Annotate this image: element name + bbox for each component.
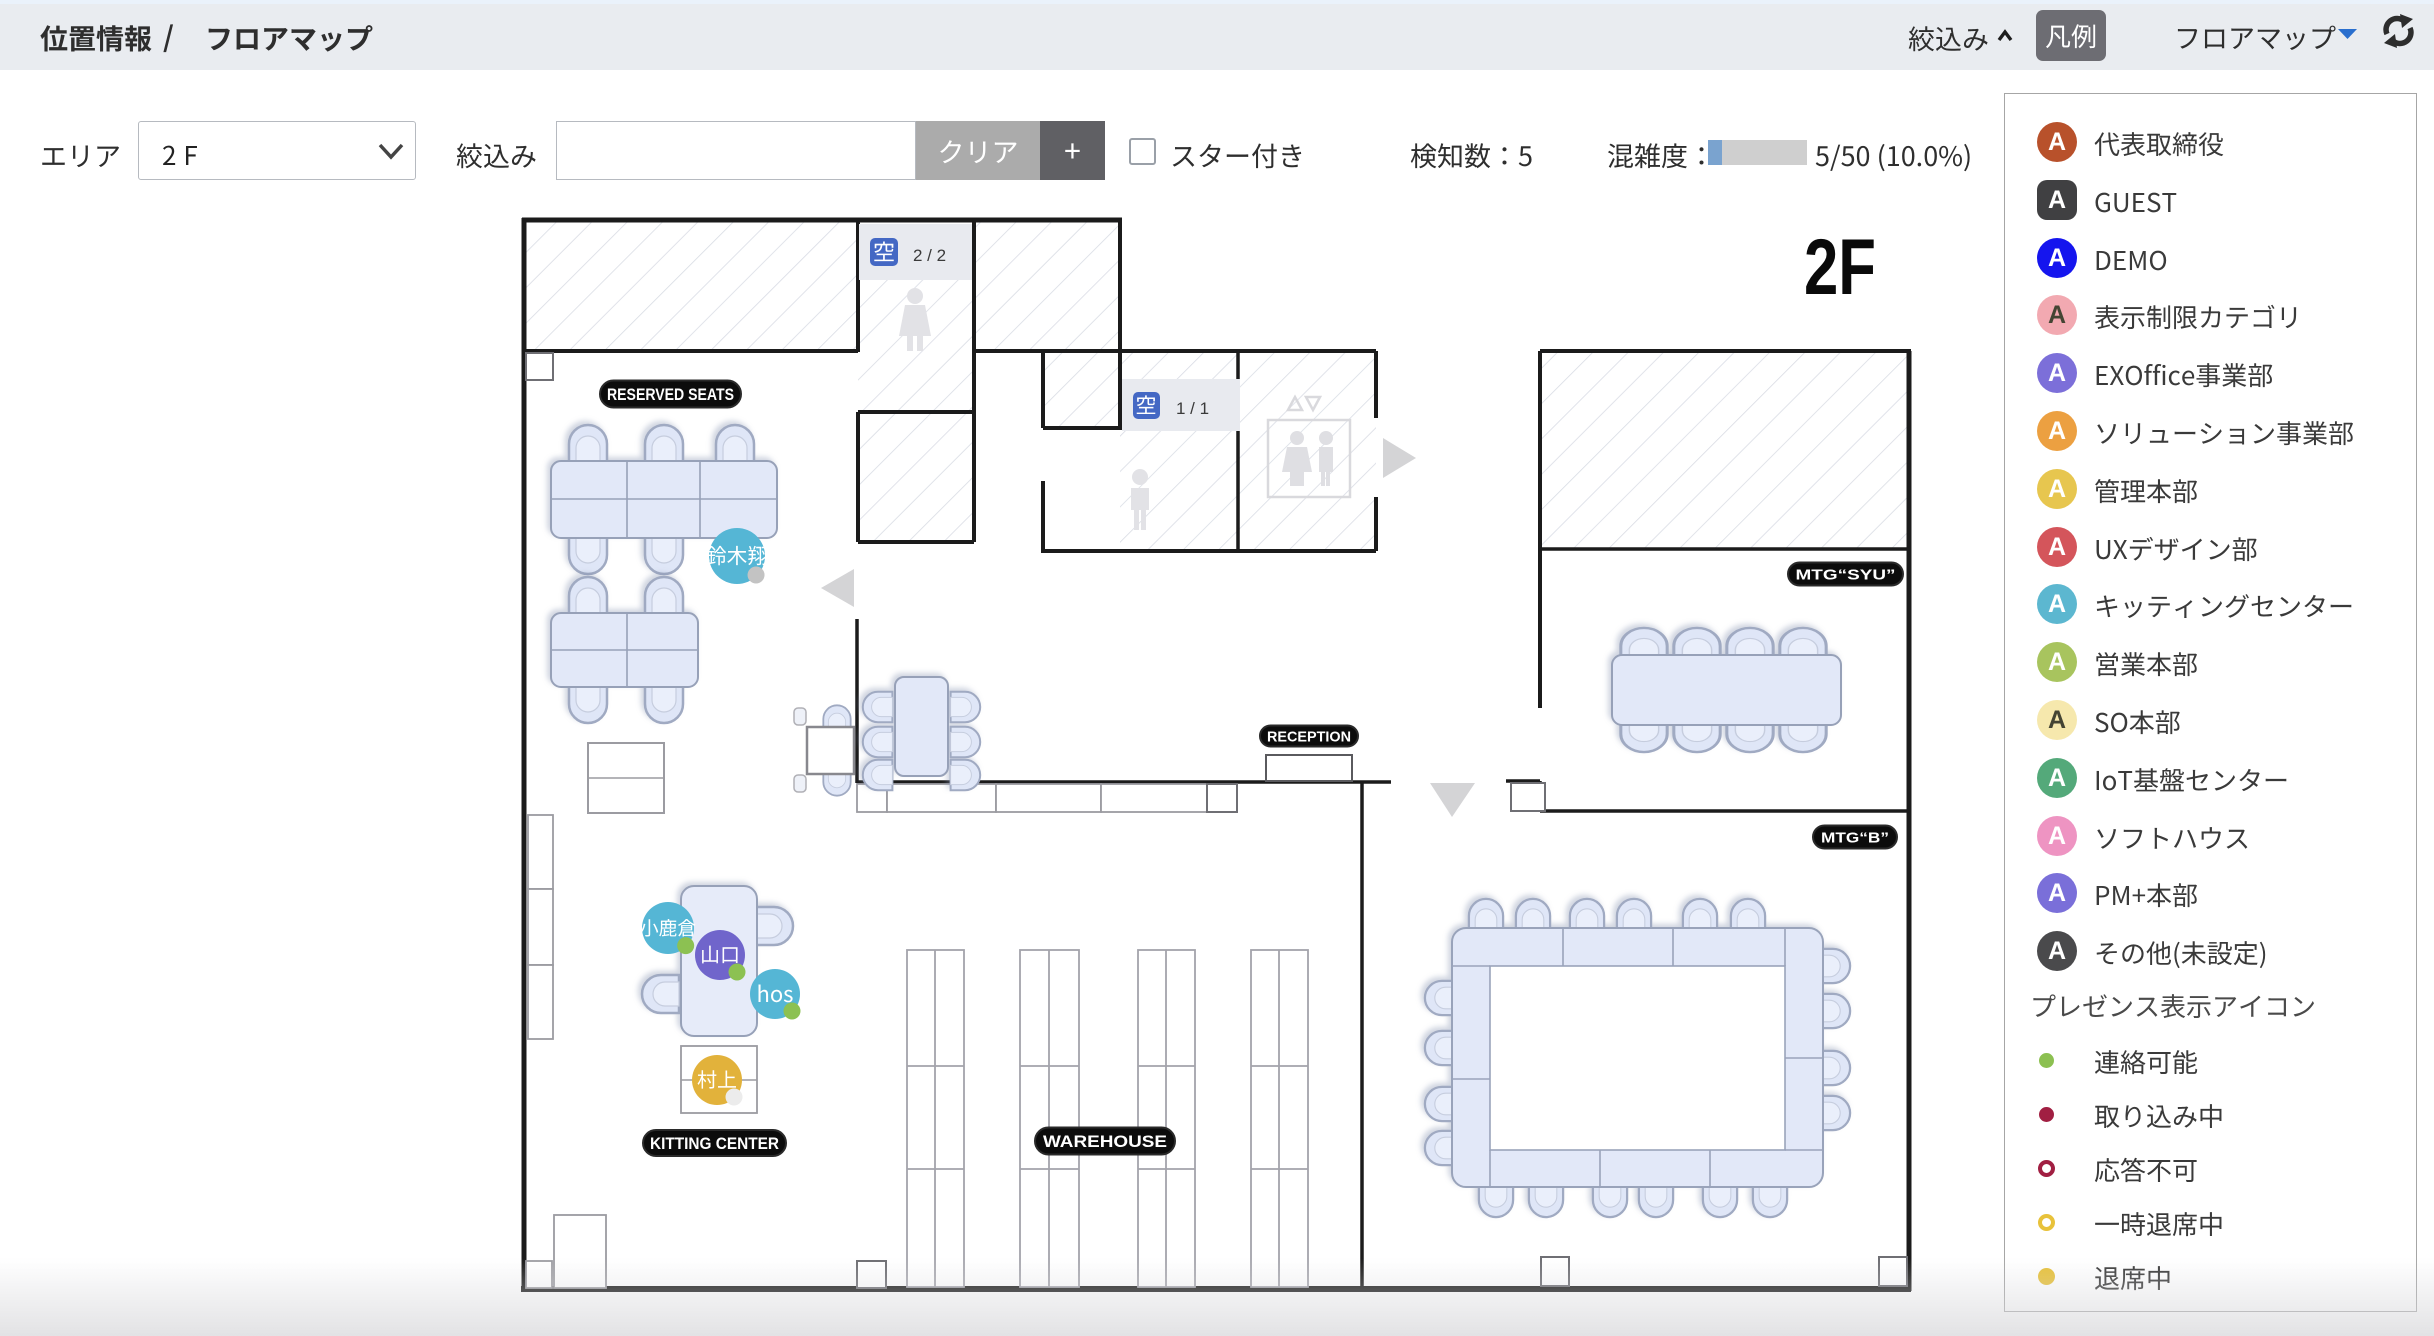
svg-text:KITTING CENTER: KITTING CENTER <box>650 1134 779 1153</box>
svg-text:WAREHOUSE: WAREHOUSE <box>1043 1132 1167 1151</box>
svg-text:RESERVED SEATS: RESERVED SEATS <box>607 385 734 404</box>
svg-text:1 / 1: 1 / 1 <box>1176 399 1209 418</box>
svg-text:鈴木翔: 鈴木翔 <box>706 541 768 571</box>
svg-text:村上: 村上 <box>697 1064 737 1093</box>
svg-text:空: 空 <box>873 235 895 267</box>
svg-text:山口: 山口 <box>700 939 740 968</box>
svg-text:MTG“B”: MTG“B” <box>1821 829 1889 846</box>
svg-text:小鹿倉: 小鹿倉 <box>640 914 696 941</box>
svg-text:RECEPTION: RECEPTION <box>1267 728 1351 745</box>
svg-text:2F: 2F <box>1804 222 1876 311</box>
svg-text:空: 空 <box>1136 390 1157 420</box>
svg-text:MTG“SYU”: MTG“SYU” <box>1796 566 1896 583</box>
svg-text:2 / 2: 2 / 2 <box>913 246 946 265</box>
